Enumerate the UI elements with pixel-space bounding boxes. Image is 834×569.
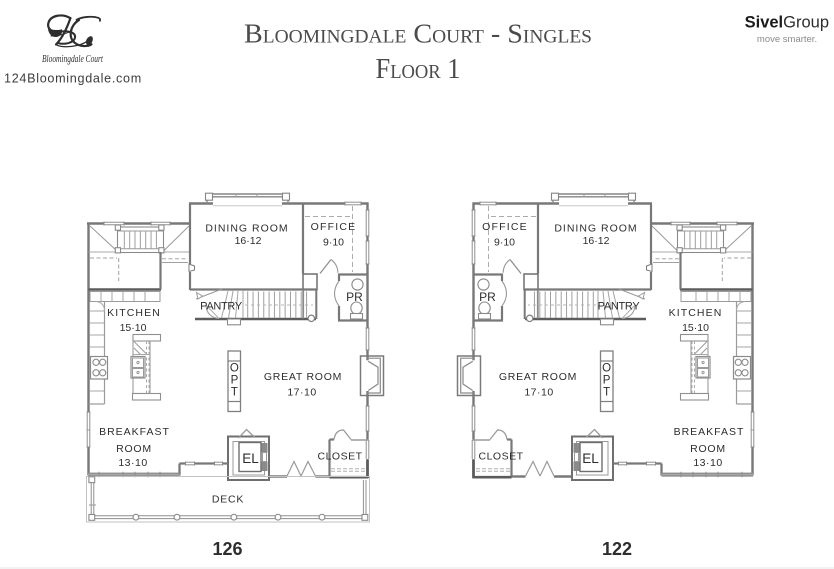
svg-text:16·12: 16·12	[235, 235, 262, 247]
svg-text:OFFICE: OFFICE	[311, 221, 357, 233]
svg-text:PR: PR	[346, 290, 363, 304]
svg-text:GREAT ROOM: GREAT ROOM	[499, 371, 577, 383]
svg-text:13·10: 13·10	[118, 457, 147, 469]
svg-text:9·10: 9·10	[323, 236, 344, 248]
svg-text:Floor 1: Floor 1	[376, 54, 461, 85]
svg-text:15·10: 15·10	[682, 322, 709, 334]
svg-text:ROOM: ROOM	[116, 443, 152, 455]
svg-text:BREAKFAST: BREAKFAST	[99, 426, 170, 438]
svg-text:122: 122	[602, 539, 632, 559]
svg-text:CLOSET: CLOSET	[478, 451, 523, 463]
svg-text:P: P	[603, 375, 611, 387]
svg-text:EL: EL	[582, 451, 599, 466]
svg-text:9·10: 9·10	[494, 236, 515, 248]
svg-text:DINING ROOM: DINING ROOM	[205, 222, 288, 234]
svg-text:17·10: 17·10	[524, 387, 553, 399]
svg-text:move smarter.: move smarter.	[757, 34, 817, 45]
svg-text:15·10: 15·10	[120, 322, 147, 334]
svg-text:126: 126	[212, 539, 242, 559]
svg-text:16·12: 16·12	[583, 235, 610, 247]
svg-text:DINING ROOM: DINING ROOM	[554, 222, 637, 234]
svg-text:Bloomingdale Court: Bloomingdale Court	[42, 54, 103, 65]
svg-text:PANTRY: PANTRY	[200, 301, 243, 313]
svg-text:O: O	[230, 363, 239, 375]
svg-text:O: O	[602, 363, 611, 375]
svg-text:KITCHEN: KITCHEN	[107, 307, 161, 319]
svg-text:KITCHEN: KITCHEN	[669, 307, 723, 319]
svg-text:PANTRY: PANTRY	[598, 301, 641, 313]
svg-text:EL: EL	[242, 451, 259, 466]
svg-text:OFFICE: OFFICE	[482, 221, 528, 233]
svg-text:GREAT ROOM: GREAT ROOM	[264, 371, 342, 383]
svg-text:PR: PR	[479, 290, 496, 304]
svg-text:P: P	[231, 375, 239, 387]
svg-text:DECK: DECK	[212, 494, 244, 506]
svg-text:ROOM: ROOM	[690, 443, 726, 455]
svg-text:17·10: 17·10	[287, 387, 316, 399]
svg-text:13·10: 13·10	[693, 457, 722, 469]
svg-text:CLOSET: CLOSET	[317, 451, 362, 463]
svg-text:T: T	[603, 387, 610, 399]
svg-text:SivelGroup: SivelGroup	[745, 14, 829, 32]
svg-text:T: T	[231, 387, 238, 399]
svg-text:Bloomingdale Court - Singles: Bloomingdale Court - Singles	[244, 18, 592, 49]
svg-text:BREAKFAST: BREAKFAST	[674, 426, 745, 438]
svg-text:124Bloomingdale.com: 124Bloomingdale.com	[4, 71, 142, 85]
